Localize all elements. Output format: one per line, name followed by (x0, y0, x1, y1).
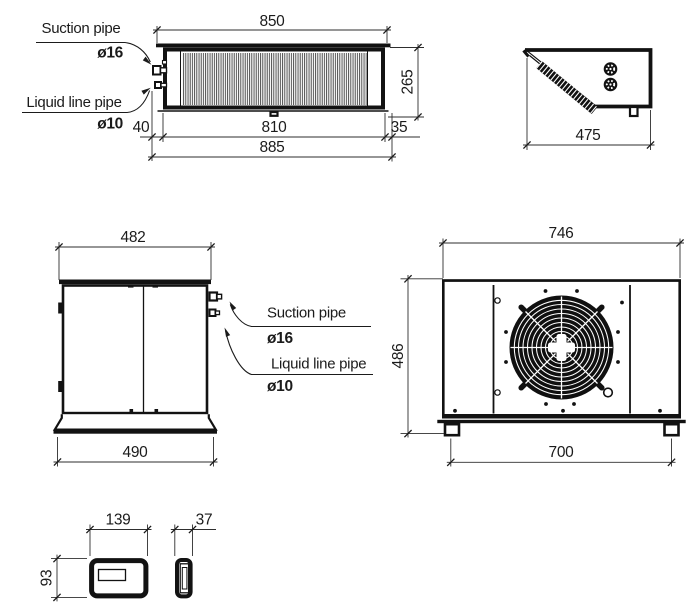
suction-diameter-label: ø16 (97, 45, 123, 62)
dim-value-885: 885 (260, 139, 285, 156)
dim-value-746: 746 (549, 225, 574, 242)
front-bottom-bar (442, 414, 681, 419)
suction-pipe-stub-top (153, 61, 167, 75)
screw-mark (155, 409, 159, 413)
dim-value-475: 475 (576, 127, 601, 144)
dim-value-40: 40 (133, 119, 150, 136)
top-bar-tick (153, 285, 159, 288)
fan-hub-cross (557, 334, 567, 361)
condensing-unit-drawing: 850 265 (0, 0, 700, 613)
dim-value-850: 850 (260, 13, 286, 30)
front-view: 746 (390, 225, 686, 467)
dim-value-265: 265 (400, 70, 417, 95)
front-bottom-lip (437, 420, 685, 423)
controller-side-view: 37 (171, 512, 216, 597)
dim-flange-width: 850 (153, 13, 391, 43)
dim-feet-span-700: 700 (447, 439, 676, 467)
fan-grille (510, 296, 614, 400)
dim-top-width-482: 482 (55, 229, 215, 280)
dim-width-139: 139 (86, 512, 152, 557)
side-body (63, 286, 207, 414)
dim-value-139: 139 (106, 512, 131, 529)
liquid-pipe-callout-top: Liquid line pipe ø10 (22, 88, 151, 133)
liquid-diameter-label: ø10 (97, 116, 123, 133)
dim-overall-885: 885 (148, 139, 396, 161)
dim-base-width-490: 490 (54, 437, 218, 467)
dim-value-700: 700 (549, 444, 575, 461)
drain-hole (604, 388, 613, 397)
profile-body (527, 50, 651, 107)
foot-left (445, 424, 459, 435)
profile-foot (630, 107, 638, 116)
dim-height-93: 93 (39, 555, 88, 602)
liquid-pipe-callout-side: Liquid line pipe ø10 (225, 328, 374, 396)
screw-hole (495, 298, 500, 303)
suction-pipe-callout-side: Suction pipe ø16 (230, 302, 372, 348)
side-view: 482 Suction pipe ø16 (54, 229, 374, 467)
dim-depth-265: 265 (388, 44, 424, 121)
hinge-upper (58, 303, 62, 314)
coil-fins (182, 53, 367, 105)
dim-value-810: 810 (262, 119, 288, 136)
top-bar-tick (128, 285, 134, 288)
dim-value-37: 37 (196, 512, 213, 529)
leader-arrowhead (225, 328, 231, 337)
controller-side-slot-inner (182, 568, 187, 590)
controller-front-view: 139 93 (39, 512, 152, 602)
dim-width-37: 37 (171, 512, 216, 557)
top-view: 850 265 (22, 13, 424, 162)
foot-right (665, 424, 679, 435)
screw-hole (495, 390, 500, 395)
liquid-pipe-label: Liquid line pipe (271, 356, 366, 373)
liquid-pipe-stub-top (155, 82, 167, 88)
drain-tab (271, 112, 278, 116)
service-port-lower (604, 78, 618, 92)
base-skirt (55, 414, 216, 429)
dim-value-93: 93 (39, 570, 56, 587)
dim-top-width-746: 746 (439, 225, 684, 278)
dim-value-490: 490 (123, 444, 149, 461)
liquid-pipe-stub-side (210, 310, 220, 317)
profile-view: 475 (523, 50, 655, 150)
top-flange (156, 44, 391, 48)
suction-pipe-label: Suction pipe (42, 20, 121, 37)
suction-pipe-label: Suction pipe (267, 305, 346, 322)
liquid-diameter-label: ø10 (267, 378, 293, 395)
hinge-lower (58, 381, 62, 392)
service-port-upper (604, 62, 618, 76)
controller-display (99, 570, 126, 581)
dim-value-35: 35 (391, 119, 408, 136)
dim-value-486: 486 (390, 344, 407, 369)
dim-value-482: 482 (121, 229, 146, 246)
side-top-bar (59, 280, 211, 285)
dim-height-486: 486 (390, 275, 444, 438)
base-bar (54, 429, 218, 433)
liquid-pipe-label: Liquid line pipe (26, 94, 121, 111)
suction-pipe-callout-top: Suction pipe ø16 (36, 20, 152, 65)
suction-diameter-label: ø16 (267, 330, 293, 347)
technical-drawing-page: 850 265 (0, 0, 700, 613)
screw-mark (130, 409, 134, 413)
suction-pipe-stub-side (210, 293, 222, 301)
